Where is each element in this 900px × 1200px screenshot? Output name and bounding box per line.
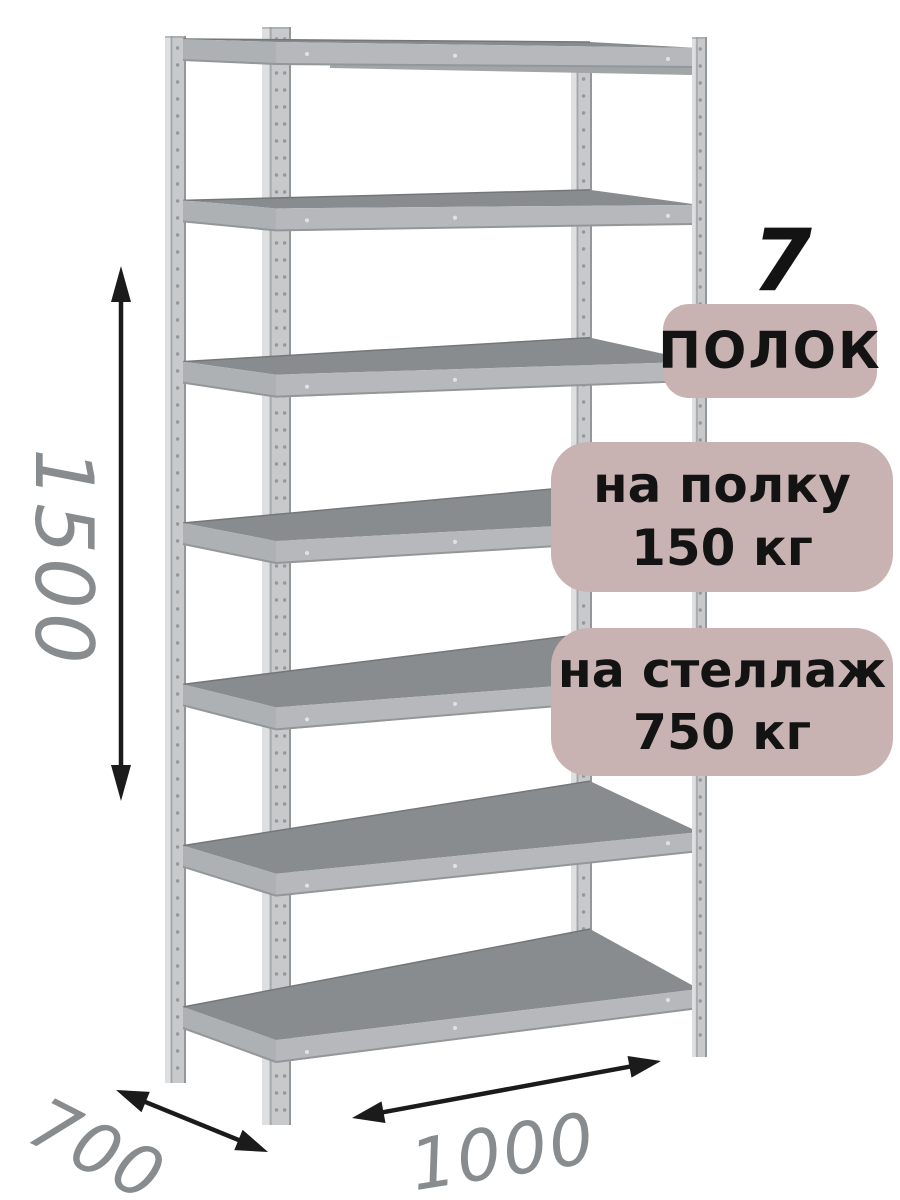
shelf — [183, 338, 699, 398]
rack-post — [262, 27, 291, 1125]
shelf — [183, 781, 699, 897]
height-dimension-label: 1500 — [23, 448, 103, 668]
per-rack-load-badge: на стеллаж 750 кг — [551, 628, 893, 776]
shelf — [183, 190, 699, 232]
height-dimension-arrow — [111, 266, 131, 801]
product-shot: 1500 700 1000 7 ПОЛОК на полку 150 кг на… — [0, 0, 900, 1200]
shelf-count-badge: ПОЛОК — [663, 304, 877, 398]
shelf — [183, 39, 699, 75]
shelf — [183, 929, 699, 1063]
per-shelf-load-line1: на полку — [593, 454, 851, 517]
shelving-rack-illustration — [0, 0, 900, 1200]
per-shelf-load-badge: на полку 150 кг — [551, 442, 893, 592]
rack-post — [165, 36, 186, 1083]
shelf-count-badge-label: ПОЛОК — [658, 322, 881, 381]
per-rack-load-line1: на стеллаж — [558, 640, 886, 702]
shelf-count-number: 7 — [732, 218, 832, 304]
per-shelf-load-line2: 150 кг — [631, 517, 813, 580]
per-rack-load-line2: 750 кг — [633, 702, 811, 764]
